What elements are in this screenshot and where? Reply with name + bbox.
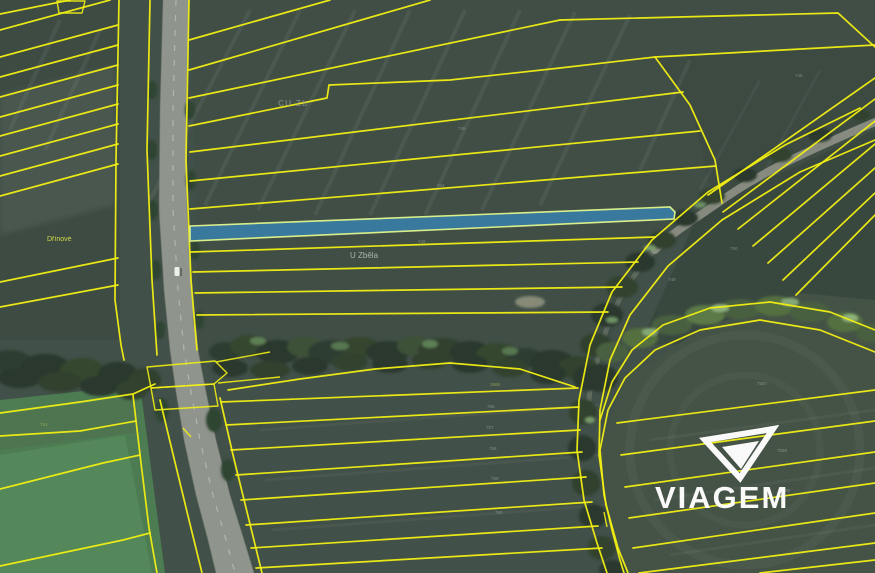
parcel-number-label: 758: [489, 446, 497, 451]
parcel-number-label: 750: [730, 246, 738, 251]
parcel-number-label: 7588: [777, 448, 788, 453]
parcel-number-label: 760: [495, 510, 503, 515]
parcel-number-label: 7587: [757, 381, 768, 386]
watermark-text: VIAGEM: [655, 480, 789, 515]
aerial-basemap: Dřínové U Zběla CU Zb 745744748746750749…: [0, 0, 875, 573]
parcel-number-label: 756: [487, 404, 495, 409]
parcel-number-label: 745: [458, 126, 466, 131]
parcel-number-label: 749: [668, 277, 676, 282]
parcel-number-label: 746: [795, 73, 803, 78]
parcel-number-label: 759: [491, 476, 499, 481]
parcel-number-label: 757: [486, 425, 494, 430]
parcel-number-label: 748: [418, 239, 426, 244]
parcel-number-label: 2689: [490, 382, 501, 387]
place-label-cu-zb: CU Zb: [278, 98, 308, 108]
place-label-u-zbela: U Zběla: [350, 251, 379, 260]
parcel-number-label: 741: [40, 422, 48, 427]
car-on-road: [175, 267, 180, 276]
place-label-drinove: Dřínové: [47, 236, 72, 243]
map-viewport[interactable]: Dřínové U Zběla CU Zb 745744748746750749…: [0, 0, 875, 573]
parcel-number-label: 744: [437, 183, 445, 188]
